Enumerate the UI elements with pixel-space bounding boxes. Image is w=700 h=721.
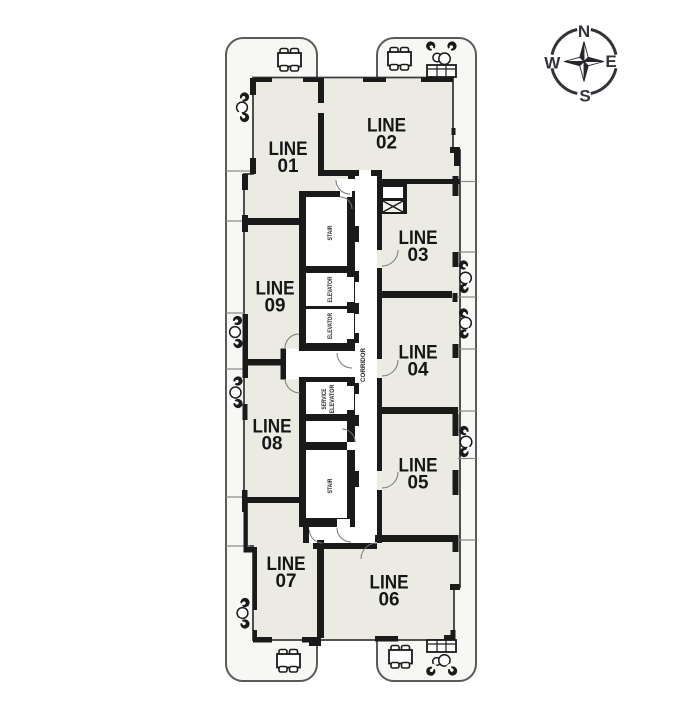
svg-text:04: 04 [408,359,429,380]
svg-text:N: N [578,22,590,41]
svg-text:03: 03 [408,245,429,266]
svg-text:ELEVATOR: ELEVATOR [327,276,334,302]
svg-text:STAIR: STAIR [327,478,334,493]
svg-text:ELEVATOR: ELEVATOR [327,313,334,339]
svg-text:S: S [579,86,590,105]
svg-text:STAIR: STAIR [327,225,334,240]
svg-text:09: 09 [265,295,286,316]
svg-text:07: 07 [276,571,297,592]
svg-text:ELEVATOR: ELEVATOR [329,384,336,413]
svg-text:08: 08 [262,433,283,454]
svg-text:CORRIDOR: CORRIDOR [360,348,367,382]
svg-text:W: W [544,53,561,72]
svg-text:02: 02 [376,132,397,153]
svg-text:01: 01 [278,156,299,177]
svg-text:E: E [605,52,616,71]
svg-text:05: 05 [408,472,429,493]
svg-text:06: 06 [379,589,400,610]
svg-text:SERVICE: SERVICE [321,388,328,409]
